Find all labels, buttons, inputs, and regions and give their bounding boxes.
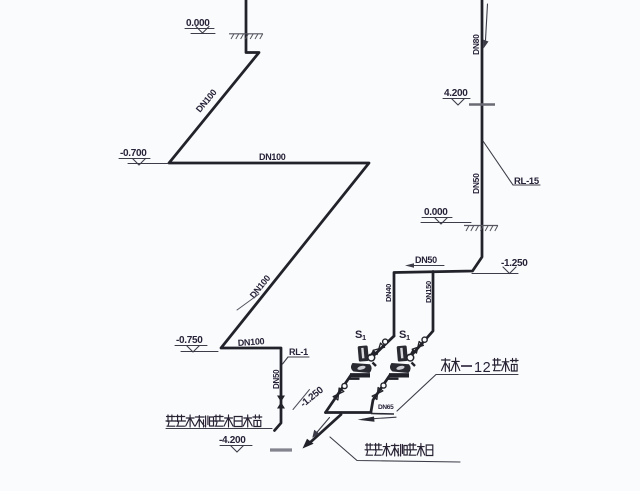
svg-text:0.000: 0.000 — [186, 18, 210, 29]
svg-text:DN65: DN65 — [378, 404, 394, 411]
svg-text:DN100: DN100 — [259, 152, 286, 162]
svg-text:-4.200: -4.200 — [219, 435, 246, 446]
svg-text:DN100: DN100 — [237, 336, 264, 348]
svg-text:-1.250: -1.250 — [501, 258, 528, 269]
svg-text:4.200: 4.200 — [444, 88, 468, 99]
svg-text:-0.700: -0.700 — [120, 148, 147, 159]
svg-text:-0.750: -0.750 — [176, 335, 203, 346]
svg-text:DN80: DN80 — [471, 34, 481, 55]
svg-text:DN150: DN150 — [424, 281, 433, 303]
svg-text:RL-15: RL-15 — [514, 176, 540, 187]
svg-text:DN50: DN50 — [272, 369, 281, 389]
svg-text:DN50: DN50 — [471, 173, 481, 194]
svg-text:DN40: DN40 — [384, 284, 393, 302]
svg-text:0.000: 0.000 — [424, 207, 448, 218]
svg-text:RL-1: RL-1 — [289, 347, 308, 357]
svg-text:DN50: DN50 — [415, 255, 437, 265]
svg-text:12: 12 — [474, 360, 491, 376]
